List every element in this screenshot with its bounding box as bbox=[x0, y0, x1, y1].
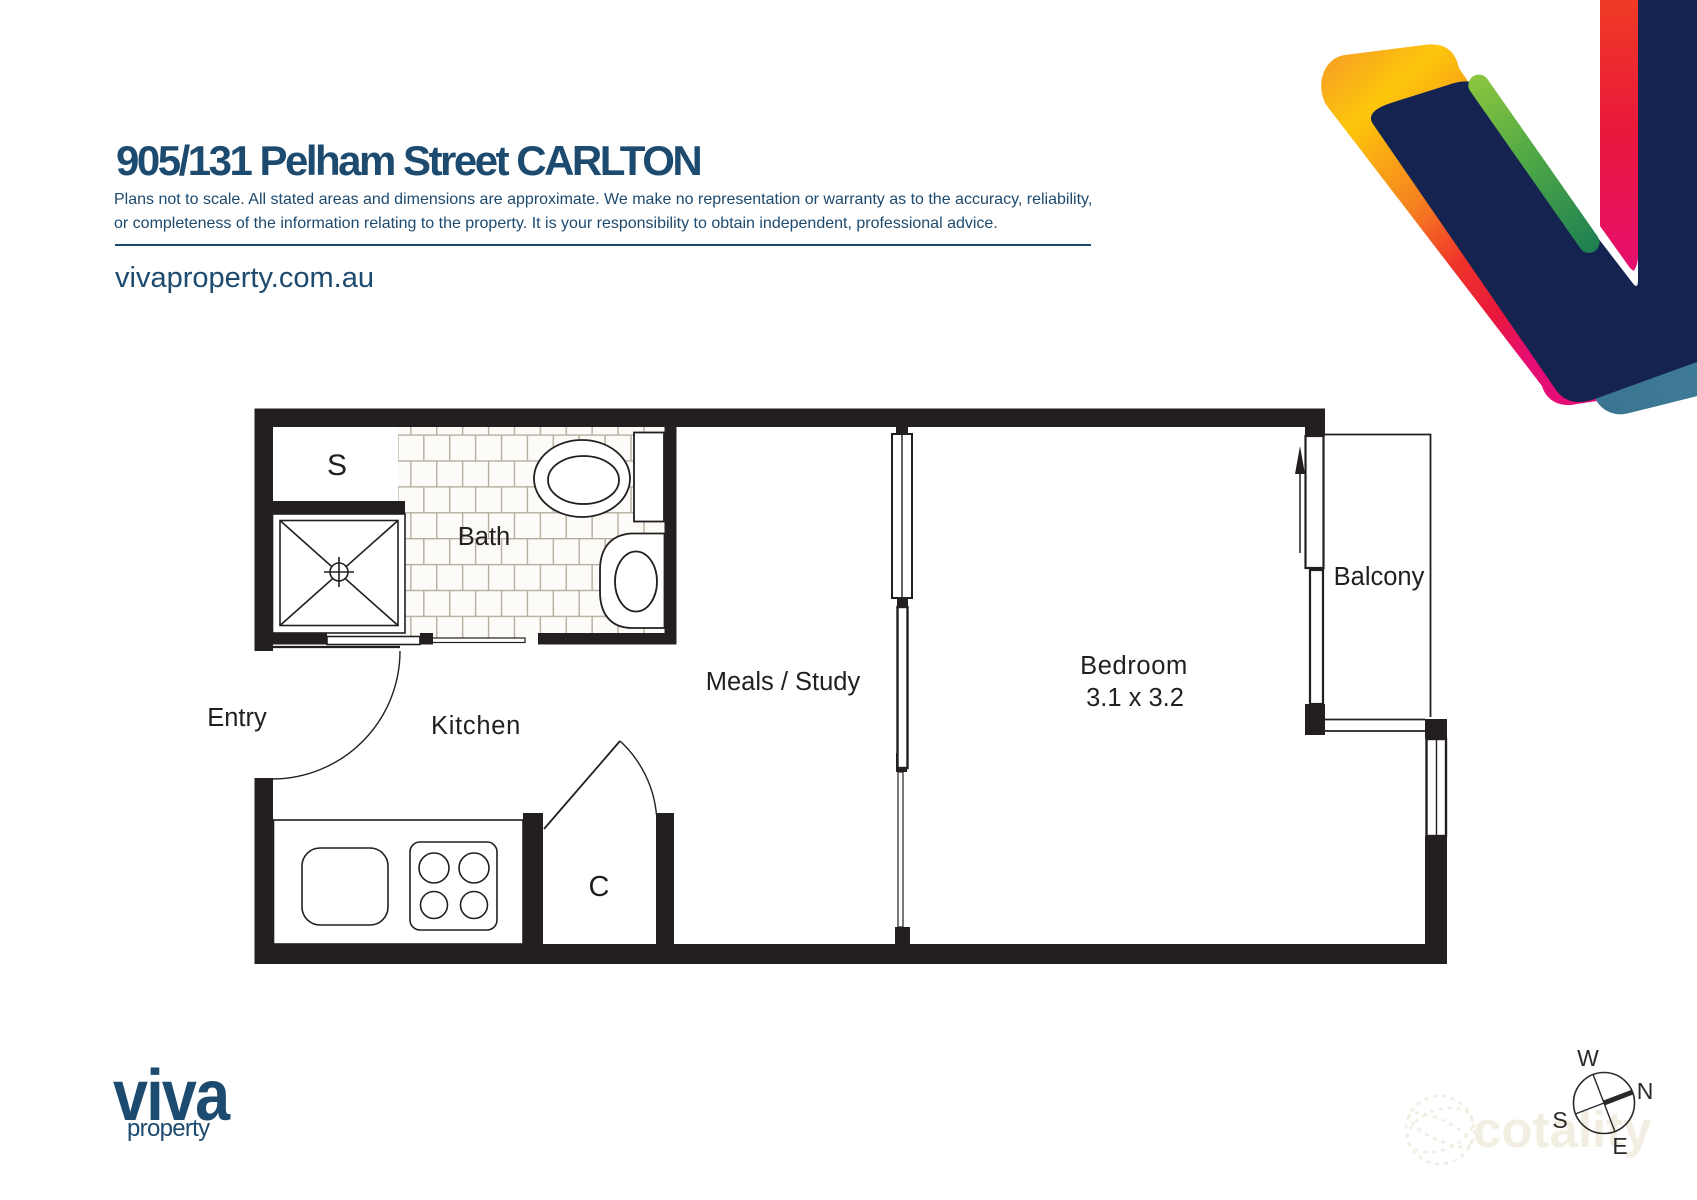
svg-text:C: C bbox=[589, 871, 610, 903]
svg-text:3.1 x 3.2: 3.1 x 3.2 bbox=[1086, 684, 1184, 712]
svg-text:S: S bbox=[1552, 1107, 1567, 1133]
svg-text:S: S bbox=[327, 449, 347, 482]
svg-text:Entry: Entry bbox=[207, 704, 267, 732]
svg-text:Bath: Bath bbox=[458, 523, 510, 551]
svg-text:Balcony: Balcony bbox=[1334, 563, 1425, 591]
svg-text:Kitchen: Kitchen bbox=[431, 712, 521, 740]
svg-text:N: N bbox=[1637, 1078, 1654, 1104]
svg-text:E: E bbox=[1612, 1133, 1627, 1159]
svg-text:Meals / Study: Meals / Study bbox=[706, 668, 861, 696]
svg-text:Bedroom: Bedroom bbox=[1080, 652, 1188, 680]
svg-text:W: W bbox=[1577, 1045, 1599, 1071]
